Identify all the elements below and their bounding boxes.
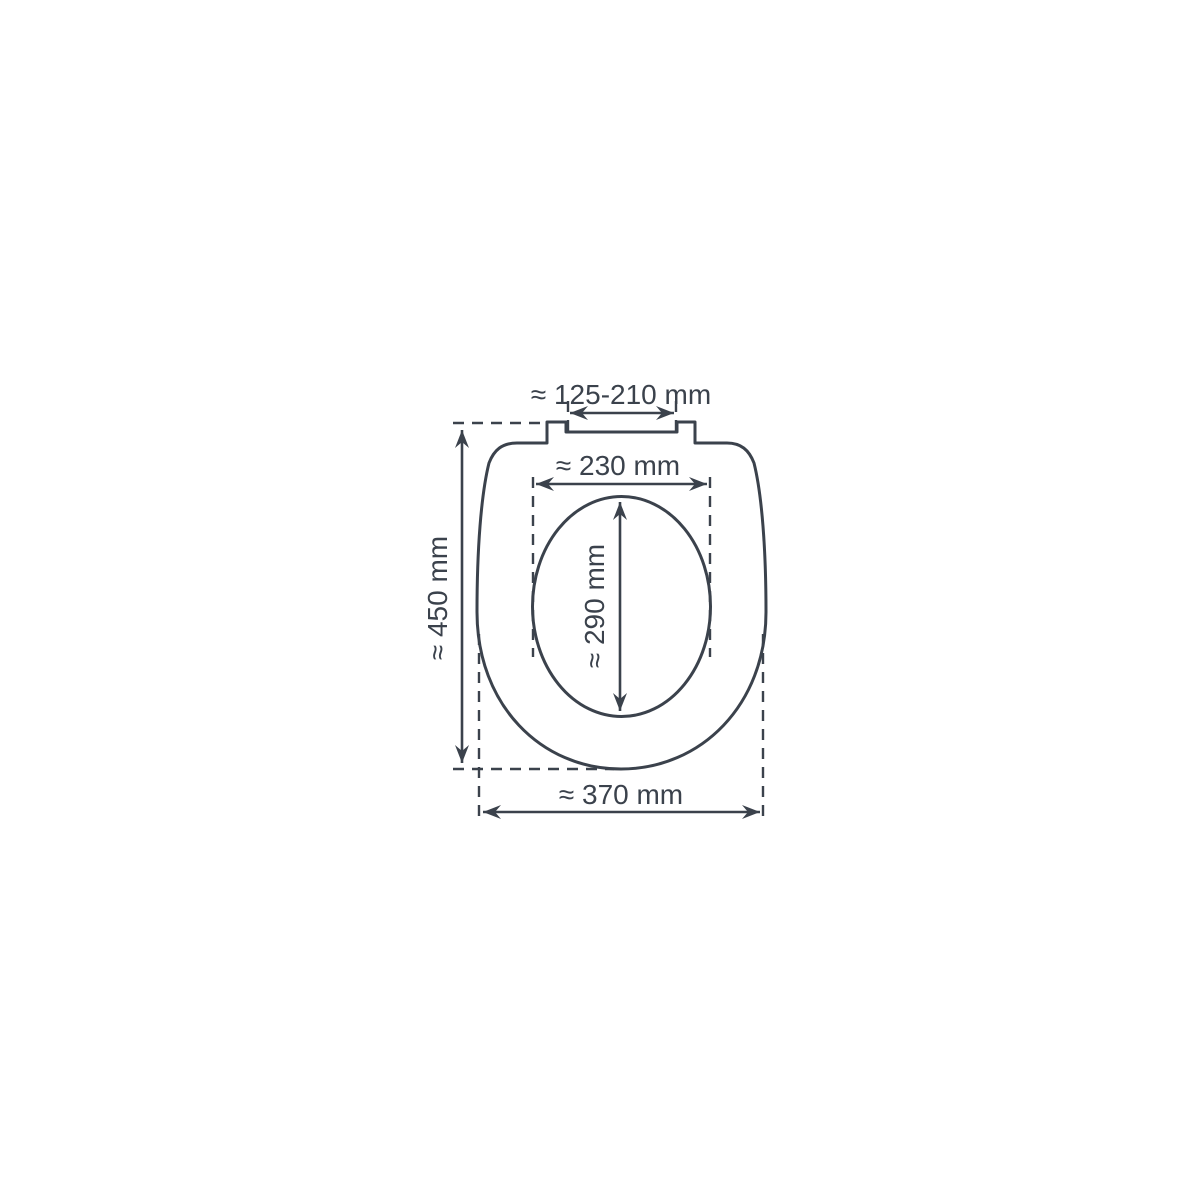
toilet-seat-diagram: ≈ 125-210 mm ≈ 230 mm ≈ 290 mm ≈ 450 mm … bbox=[0, 0, 1200, 1200]
dim-label-inner-width: ≈ 230 mm bbox=[556, 450, 680, 481]
seat-inner-opening bbox=[533, 497, 711, 717]
dim-label-inner-length: ≈ 290 mm bbox=[579, 544, 610, 668]
dim-inner-length: ≈ 290 mm bbox=[579, 502, 620, 711]
dim-inner-width: ≈ 230 mm bbox=[533, 450, 710, 657]
dim-label-total-width: ≈ 370 mm bbox=[559, 779, 683, 810]
dim-label-hinge-width: ≈ 125-210 mm bbox=[531, 379, 711, 410]
dim-label-total-length: ≈ 450 mm bbox=[422, 536, 453, 660]
dimension-drawing-canvas: ≈ 125-210 mm ≈ 230 mm ≈ 290 mm ≈ 450 mm … bbox=[0, 0, 1200, 1200]
